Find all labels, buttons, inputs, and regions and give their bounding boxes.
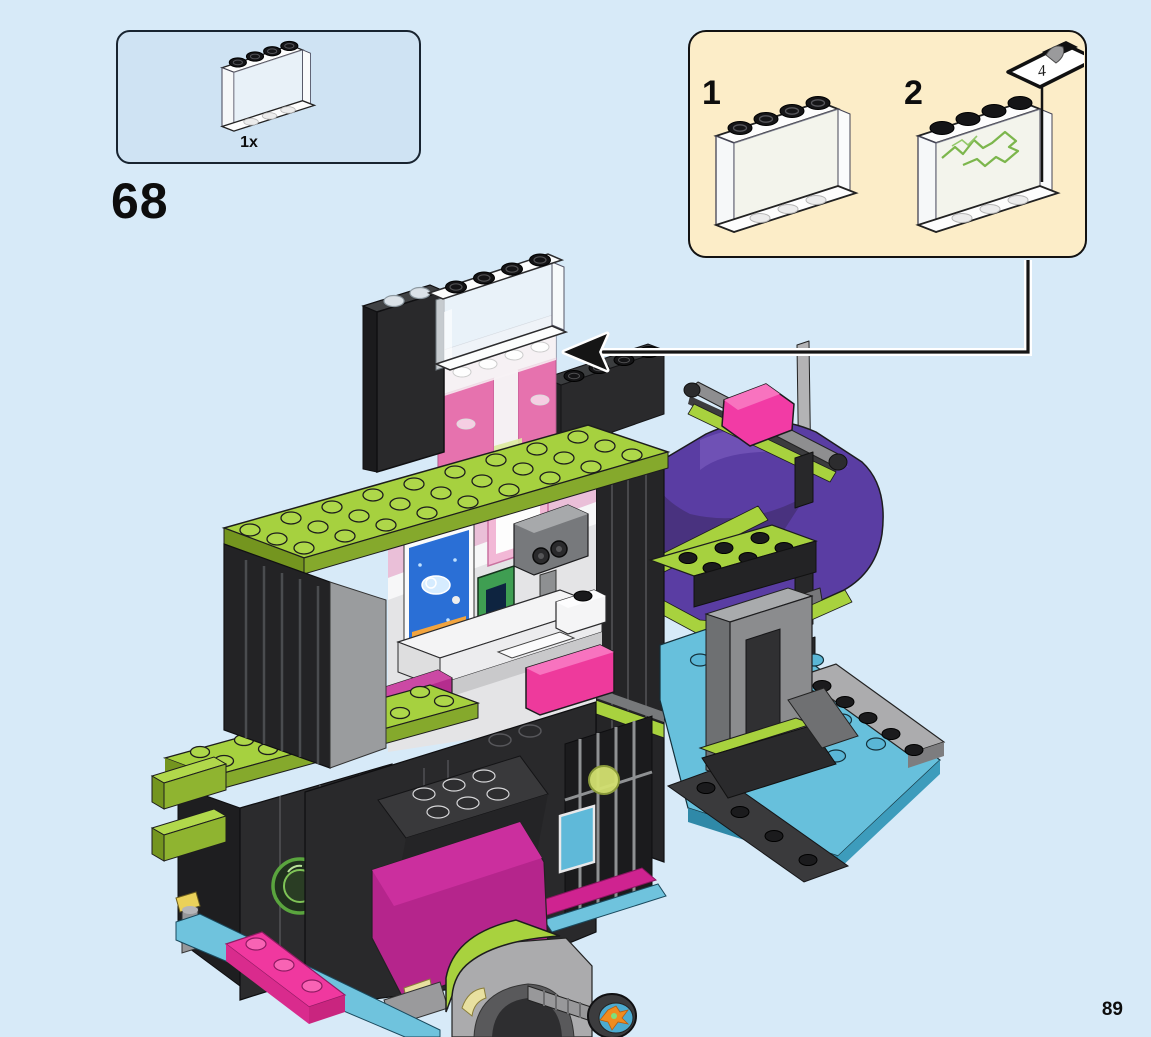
instruction-page: 1x 68 1 — [0, 0, 1151, 1037]
left-upper-wall — [224, 544, 386, 768]
yellow-porthole — [589, 766, 619, 794]
blue-window — [560, 806, 594, 872]
roller-wheel — [588, 994, 636, 1037]
page-number: 89 — [1102, 999, 1123, 1021]
arch-roller — [446, 920, 636, 1037]
leader-arrow — [564, 260, 1028, 370]
model-illustration — [0, 0, 1151, 1037]
